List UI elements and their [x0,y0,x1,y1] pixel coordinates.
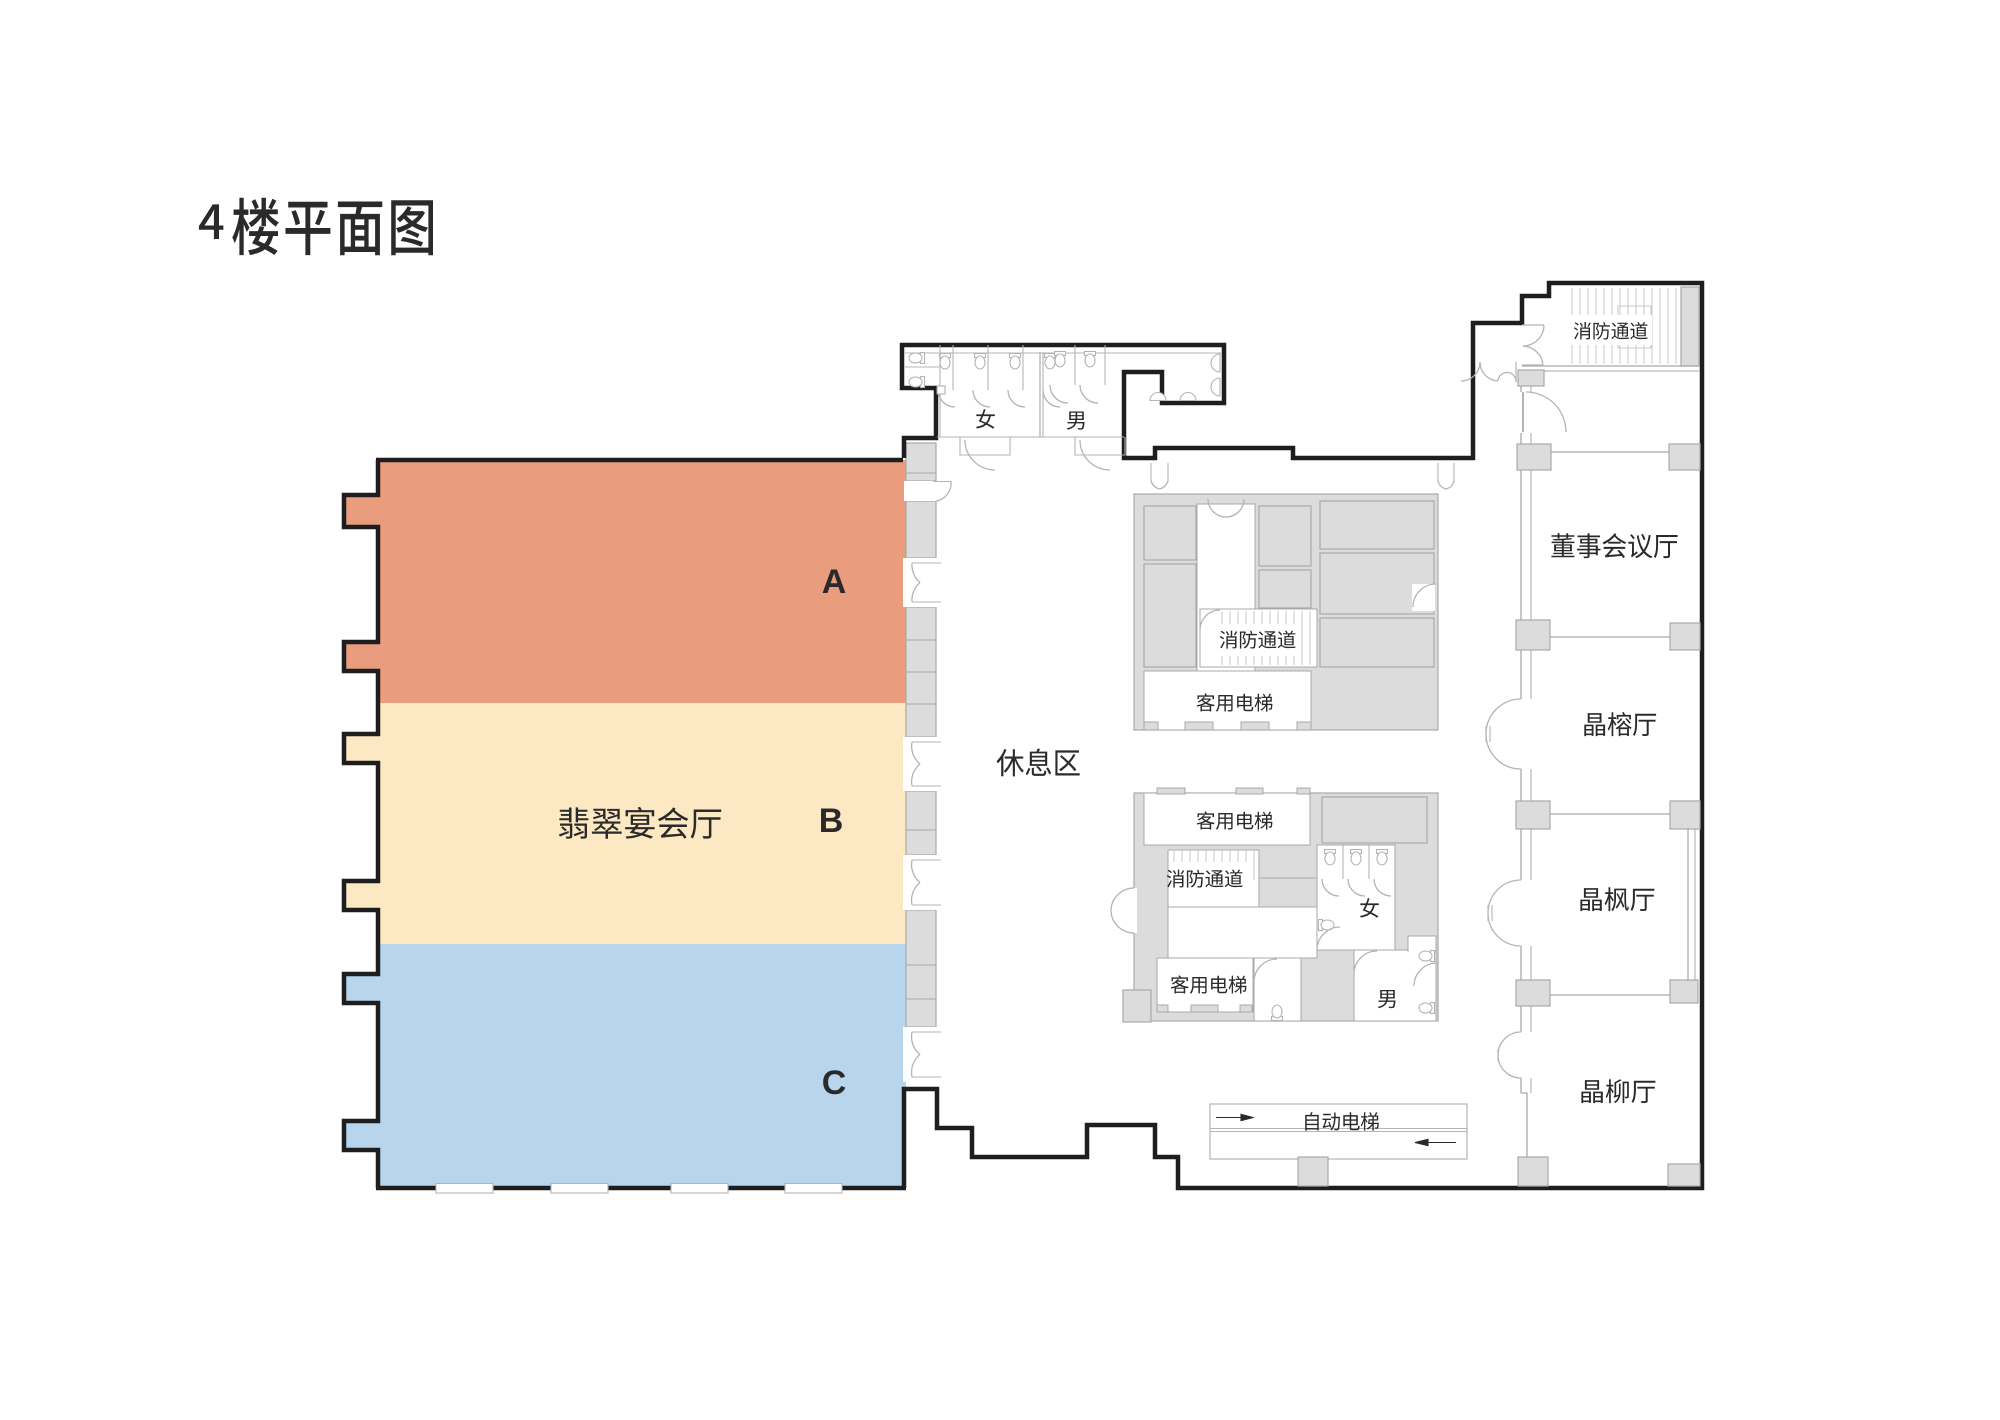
svg-text:C: C [822,1064,847,1102]
svg-text:B: B [819,802,844,840]
svg-text:A: A [822,563,847,601]
